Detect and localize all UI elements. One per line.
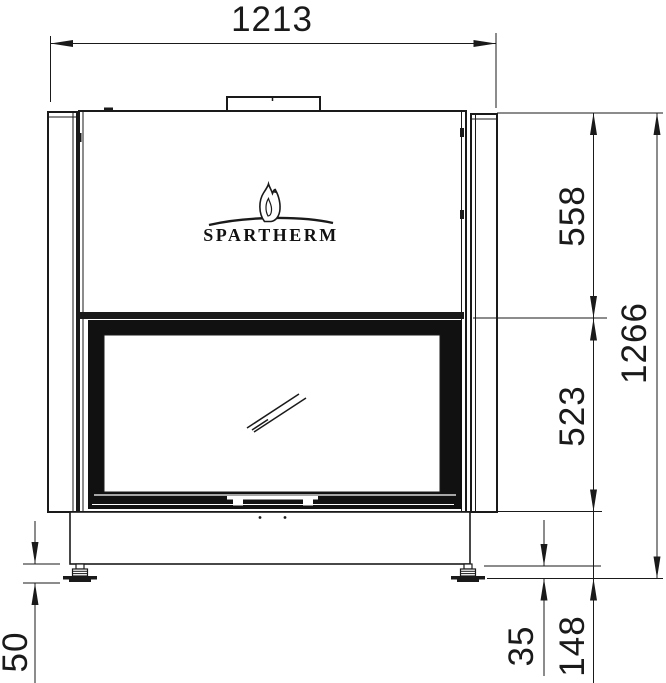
flue-collar [227, 97, 320, 112]
dim-label-total-height: 1266 [615, 283, 655, 403]
right-foot [451, 564, 485, 582]
base-plinth [70, 512, 470, 564]
left-foot [63, 564, 97, 582]
door-top-bar [80, 312, 464, 319]
left-side-panel [48, 112, 77, 512]
fireplace-unit [48, 97, 497, 582]
technical-drawing: 1213 558 523 1266 50 35 148 SPARTHERM [0, 0, 666, 683]
dim-label-foot-height: 35 [502, 586, 542, 683]
dim-label-upper-height: 558 [553, 156, 593, 276]
brand-logo-text: SPARTHERM [191, 226, 351, 244]
door-frame [88, 320, 462, 509]
drawing-linework [0, 0, 666, 683]
glass-pane [104, 335, 440, 492]
dim-label-top-width: 1213 [172, 0, 372, 40]
dim-label-foot-adjustment: 50 [0, 592, 36, 683]
dim-label-base-height: 148 [553, 586, 593, 683]
right-side-panel [471, 114, 497, 512]
dim-label-door-height: 523 [553, 356, 593, 476]
